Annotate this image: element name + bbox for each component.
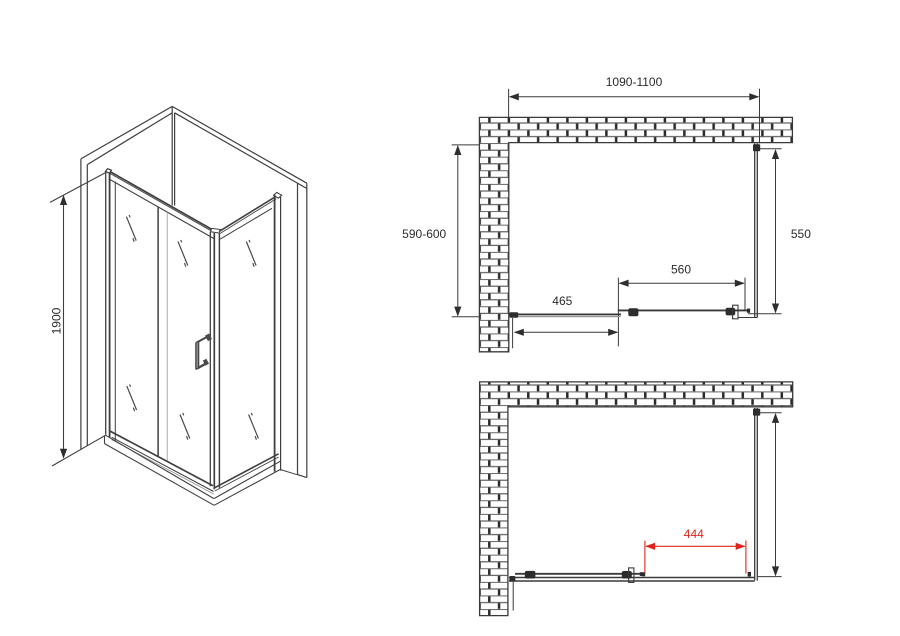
svg-text:560: 560 — [671, 262, 691, 276]
svg-text:1090-1100: 1090-1100 — [606, 75, 663, 89]
svg-text:550: 550 — [791, 227, 811, 241]
svg-text:590-600: 590-600 — [402, 227, 446, 241]
svg-text:1900: 1900 — [49, 307, 63, 334]
svg-text:465: 465 — [552, 294, 572, 308]
svg-text:444: 444 — [684, 527, 704, 541]
